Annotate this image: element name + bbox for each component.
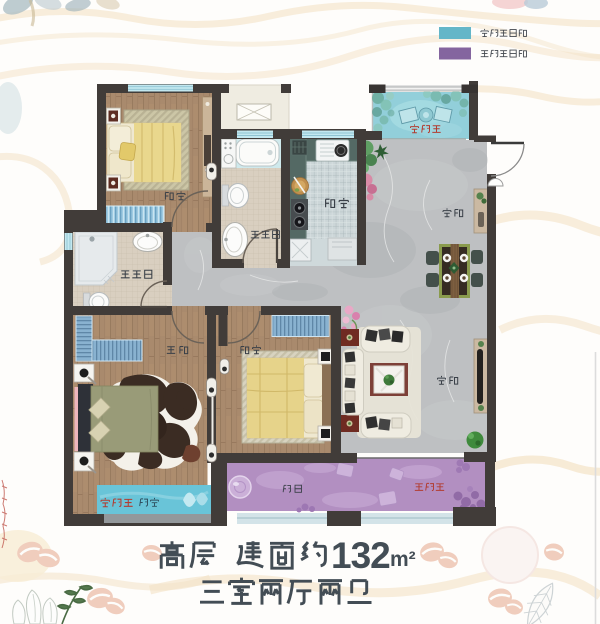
svg-text:m²: m² [390, 548, 416, 571]
svg-text:132: 132 [331, 535, 390, 576]
